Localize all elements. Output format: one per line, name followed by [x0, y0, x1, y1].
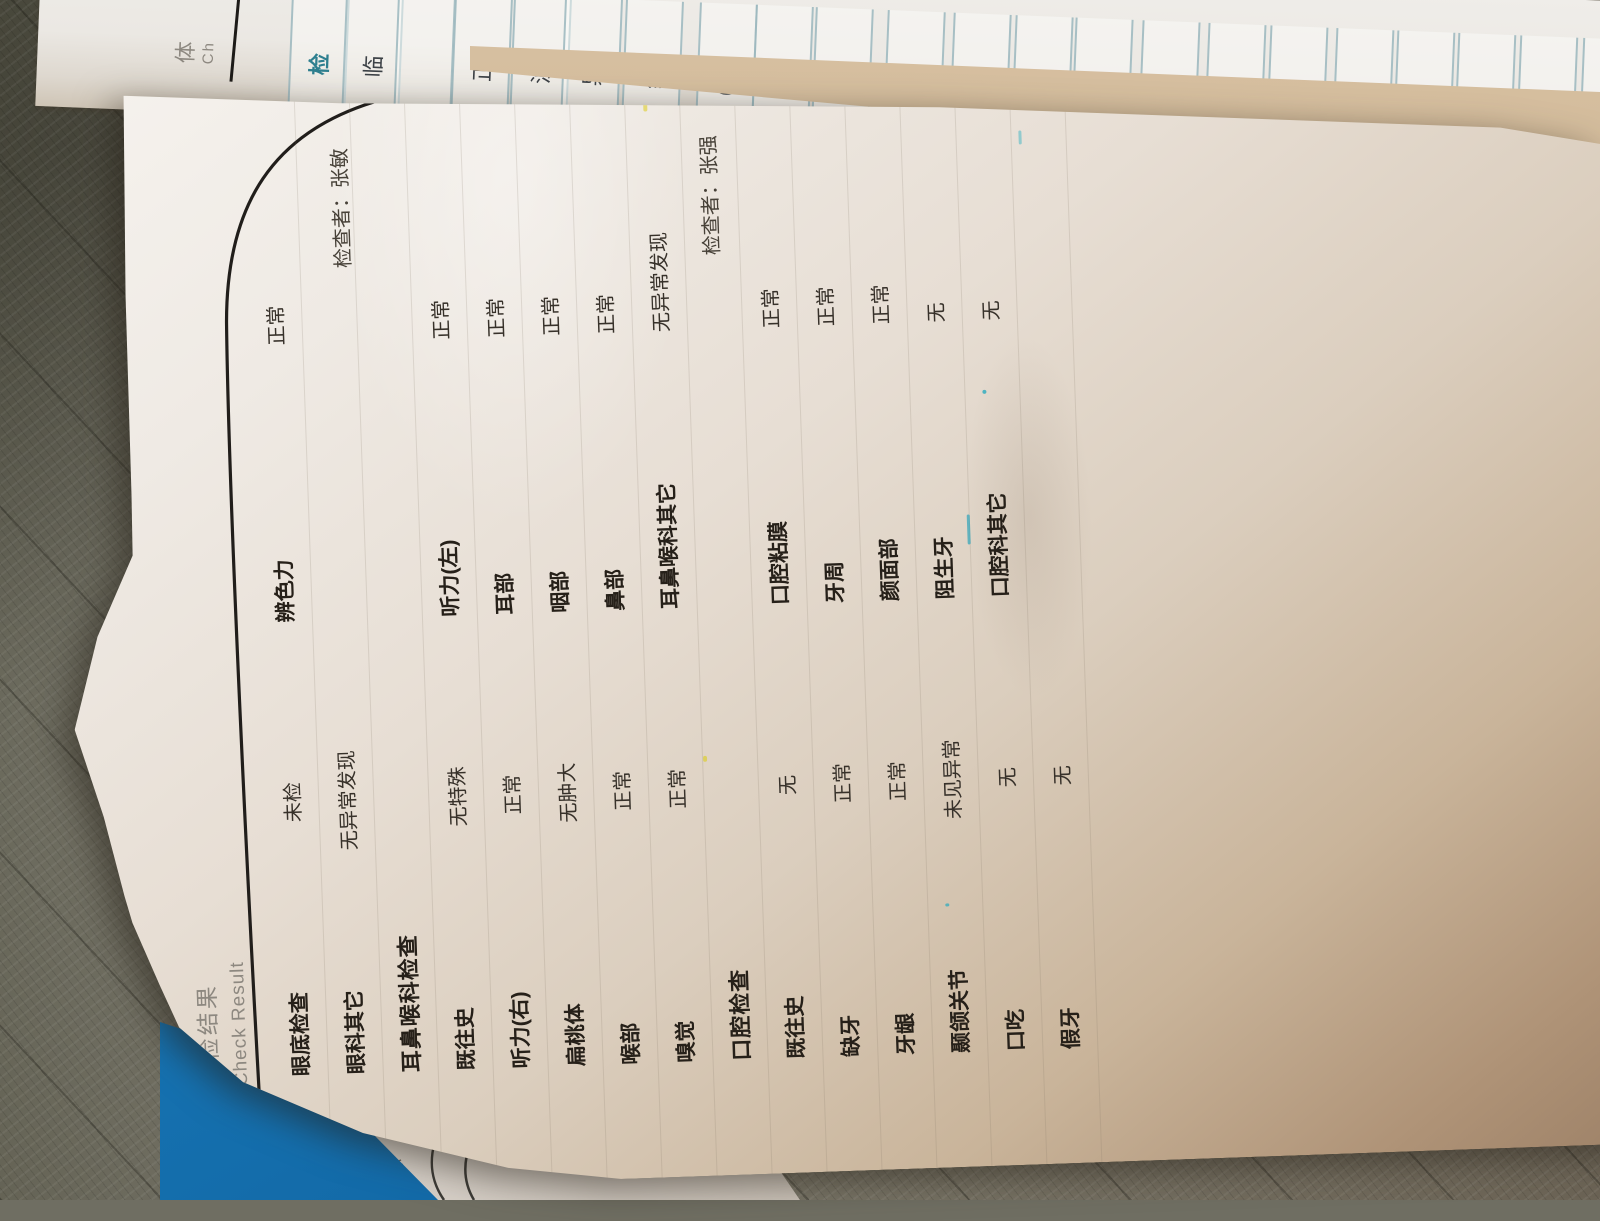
exam-item-value: 无异常发现 — [330, 750, 362, 851]
exam-item-value: 正常 — [754, 288, 784, 329]
lab-page-header-rule — [229, 0, 242, 82]
exam-item-label: 眼底检查 — [283, 992, 316, 1077]
exam-item-label: 眼科其它 — [338, 990, 371, 1075]
exam-item-label: 辨色力 — [268, 559, 300, 623]
exam-item-label: 缺牙 — [834, 1014, 865, 1057]
cyan-speck — [1018, 130, 1021, 144]
exam-item-label: 颞颌关节 — [943, 969, 976, 1054]
exam-item-label: 颜面部 — [872, 538, 904, 602]
exam-item-label: 听力(右) — [503, 991, 536, 1069]
exam-item-label: 牙龈 — [889, 1013, 920, 1056]
exam-item-label: 牙周 — [818, 561, 849, 604]
exam-item-value: 未见异常 — [935, 739, 967, 820]
exam-item-value: 无 — [771, 775, 801, 796]
exam-item-value: 正常 — [809, 286, 839, 327]
exam-item-value: 无 — [991, 767, 1021, 788]
examiner-signature: 检查者：张强 — [692, 135, 725, 256]
exam-item-value: 无肿大 — [551, 762, 582, 823]
exam-item-value: 无异常发现 — [642, 232, 674, 333]
exam-item-label: 假牙 — [1054, 1007, 1085, 1050]
exam-item-value: 正常 — [424, 299, 454, 340]
lab-strip-cell: 检 — [287, 0, 350, 108]
exam-item-value: 正常 — [661, 768, 691, 809]
exam-item-label: 耳部 — [488, 572, 519, 615]
section-title: 口腔检查 — [721, 968, 756, 1061]
exam-item-label: 咽部 — [543, 570, 574, 613]
cyan-speck — [945, 903, 949, 906]
exam-item-label: 喉部 — [614, 1022, 645, 1065]
results-table: 眼底检查 未检 辨色力 正常 眼科其它 无异常发现 耳鼻喉科检查检查者：张敏 既… — [239, 43, 1103, 1191]
exam-item-label: 口吃 — [999, 1009, 1030, 1052]
exam-item-value: 正常 — [589, 294, 619, 335]
exam-item-label: 嗅觉 — [669, 1020, 700, 1063]
exam-item-value: 正常 — [496, 774, 526, 815]
exam-item-label: 耳鼻喉科其它 — [650, 483, 684, 610]
exam-item-value: 正常 — [864, 284, 894, 325]
exam-item-value: 无 — [975, 300, 1005, 321]
exam-item-label: 听力(左) — [432, 539, 465, 617]
examiner-signature: 检查者：张敏 — [323, 148, 356, 269]
exam-item-label: 既往史 — [778, 995, 810, 1059]
exam-item-label: 口腔科其它 — [981, 492, 1015, 598]
exam-item-value: 正常 — [826, 763, 856, 804]
check-result-page: 体检结果 Check Result 眼底检查 未检 辨色力 正常 眼科其它 无异… — [36, 0, 1600, 1198]
exam-item-value: 正常 — [606, 770, 636, 811]
exam-item-label: 既往史 — [449, 1007, 481, 1071]
lab-strip-cell: 体Ch — [164, 0, 223, 103]
yellow-speck — [703, 756, 707, 762]
exam-item-label: 鼻部 — [598, 568, 629, 611]
exam-item-value: 无 — [920, 302, 950, 323]
lab-strip-cell-text: 体Ch — [168, 39, 218, 65]
lab-strip-cell-text: 检 — [302, 51, 335, 76]
exam-item-label: 扁桃体 — [559, 1003, 591, 1067]
section-title: 耳鼻喉科检查 — [390, 934, 427, 1073]
exam-item-value: 正常 — [259, 305, 289, 346]
exam-item-label: 口腔粘膜 — [762, 521, 795, 606]
exam-item-value: 未检 — [276, 782, 306, 823]
exam-item-value: 正常 — [479, 297, 509, 338]
exam-item-label: 阻生牙 — [927, 536, 959, 600]
exam-item-value: 无 — [1046, 765, 1076, 786]
lab-strip-cell — [393, 0, 456, 113]
exam-item-value: 正常 — [534, 295, 564, 336]
lab-strip-cell-text: 临 — [356, 53, 389, 78]
exam-item-value: 无特殊 — [441, 766, 472, 827]
exam-item-value: 正常 — [881, 761, 911, 802]
